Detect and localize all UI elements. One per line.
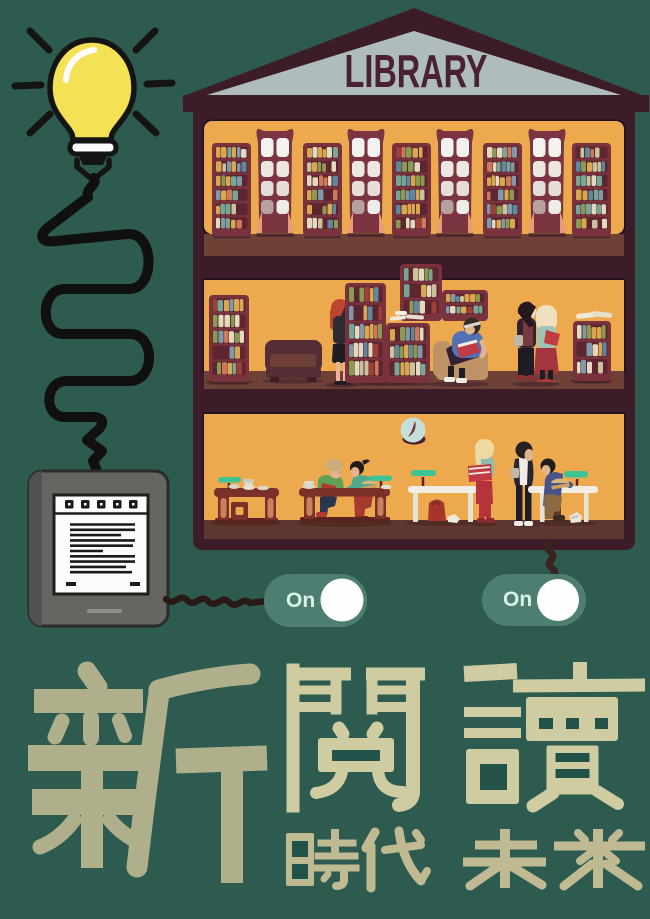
svg-text:LIBRARY: LIBRARY (345, 45, 488, 97)
svg-text:On: On (503, 588, 532, 611)
svg-text:On: On (286, 589, 315, 612)
